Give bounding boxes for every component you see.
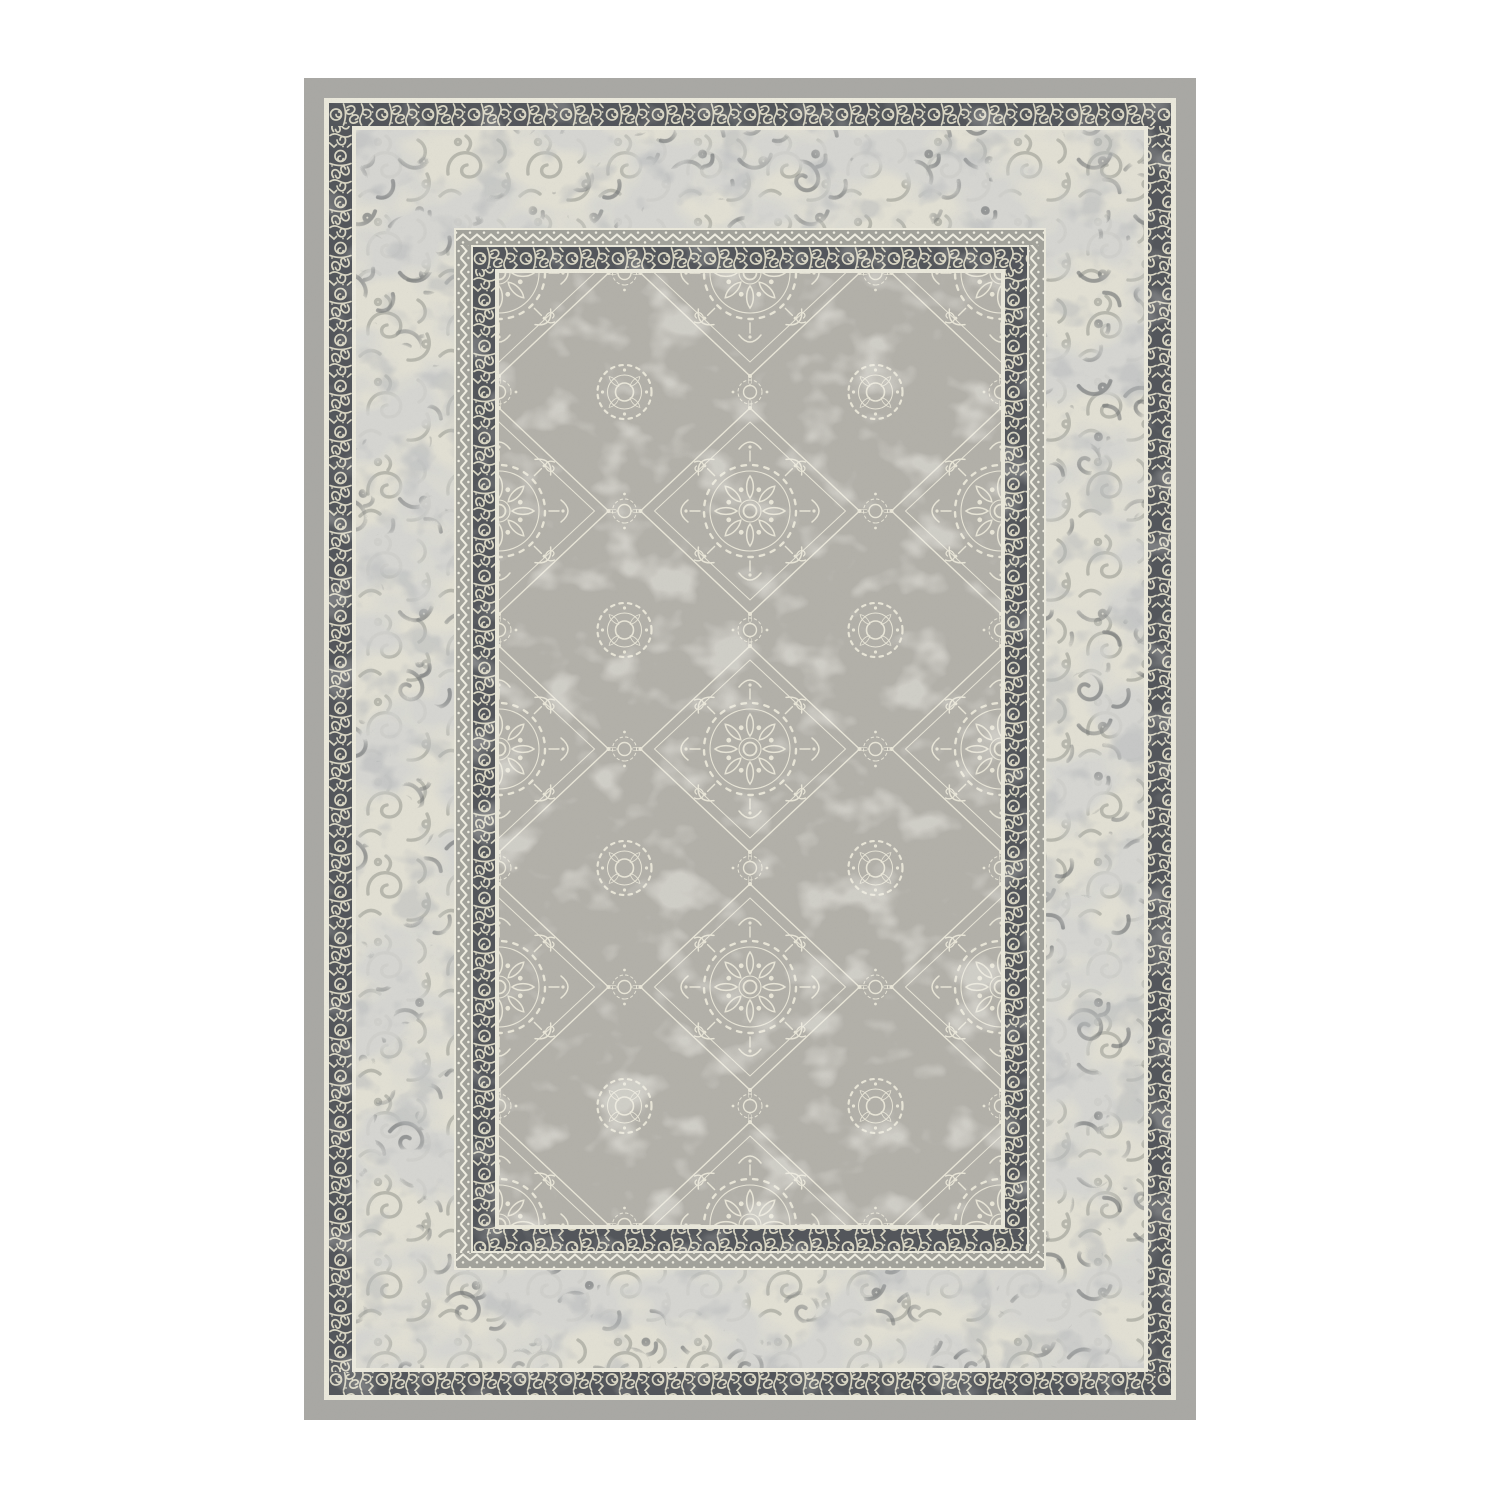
field-arabesque (499, 273, 1001, 1225)
page-background (0, 0, 1500, 1500)
rug-image (304, 78, 1196, 1420)
